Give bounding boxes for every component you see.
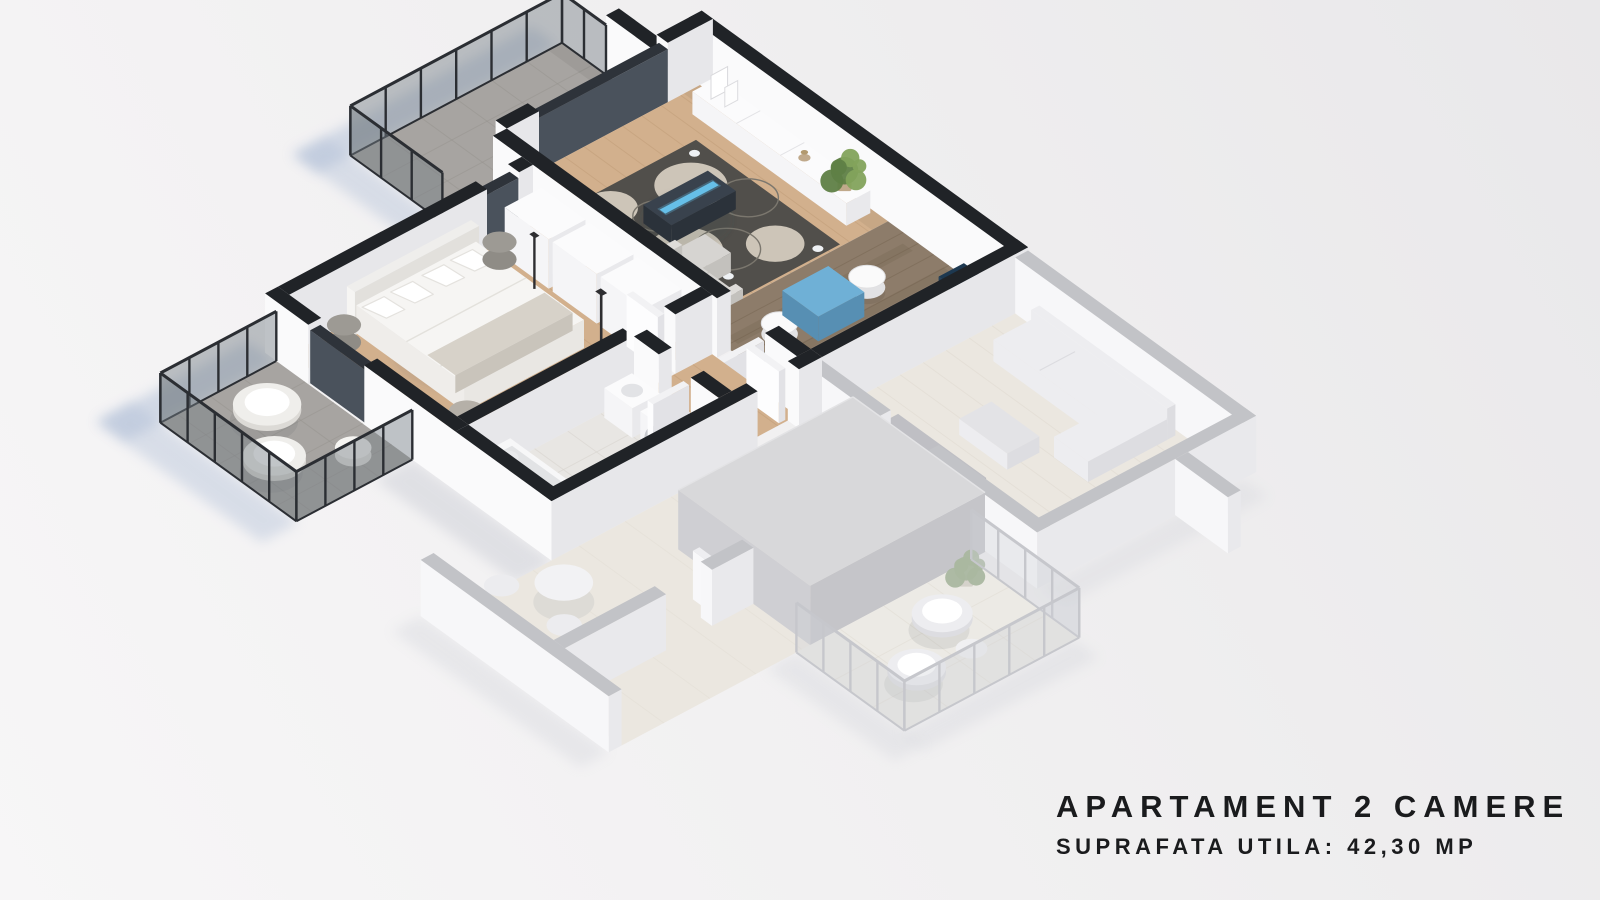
apartment-area: SUPRAFATA UTILA: 42,30 MP (1056, 834, 1570, 860)
page: APARTAMENT 2 CAMERE SUPRAFATA UTILA: 42,… (0, 0, 1600, 900)
floorplan-3d-rendering (0, 0, 1600, 900)
title-block: APARTAMENT 2 CAMERE SUPRAFATA UTILA: 42,… (1056, 789, 1570, 860)
apartment-title: APARTAMENT 2 CAMERE (1056, 789, 1570, 825)
